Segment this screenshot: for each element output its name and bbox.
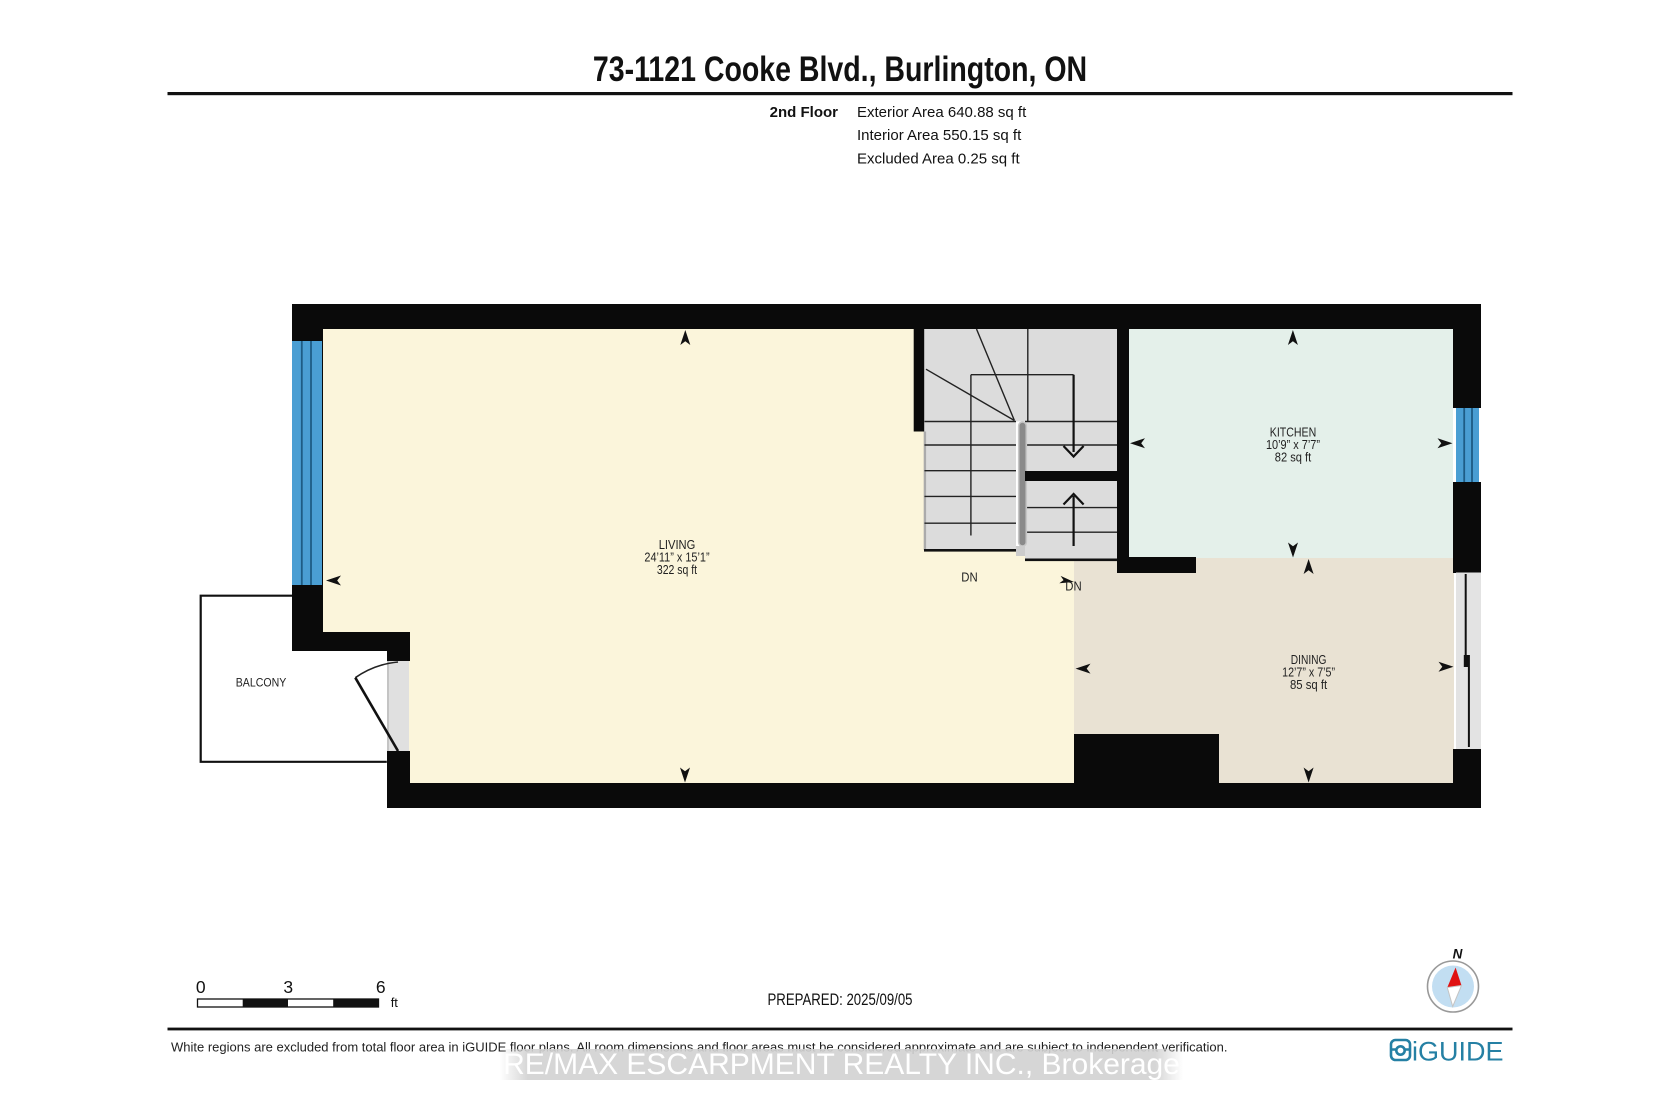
svg-text:ft: ft (391, 995, 399, 1010)
svg-text:3: 3 (283, 977, 293, 997)
svg-text:73-1121 Cooke Blvd., Burlingto: 73-1121 Cooke Blvd., Burlington, ON (593, 49, 1087, 88)
svg-text:0: 0 (196, 977, 206, 997)
svg-text:82 sq ft: 82 sq ft (1275, 450, 1312, 465)
svg-text:PREPARED: 2025/09/05: PREPARED: 2025/09/05 (767, 990, 912, 1009)
svg-text:DN: DN (1065, 578, 1081, 593)
svg-text:6: 6 (376, 977, 386, 997)
svg-text:2nd Floor: 2nd Floor (770, 104, 838, 121)
svg-text:85 sq ft: 85 sq ft (1290, 677, 1328, 692)
svg-text:Interior Area 550.15 sq ft: Interior Area 550.15 sq ft (857, 127, 1022, 144)
svg-text:RE/MAX ESCARPMENT REALTY INC.,: RE/MAX ESCARPMENT REALTY INC., Brokerage (503, 1048, 1180, 1081)
svg-text:iGUIDE: iGUIDE (1412, 1037, 1504, 1067)
svg-text:Excluded Area 0.25 sq ft: Excluded Area 0.25 sq ft (857, 150, 1020, 167)
svg-text:Exterior Area 640.88 sq ft: Exterior Area 640.88 sq ft (857, 104, 1027, 121)
svg-text:N: N (1453, 947, 1463, 962)
svg-text:322 sq ft: 322 sq ft (657, 562, 698, 577)
svg-text:DN: DN (961, 570, 977, 585)
svg-text:BALCONY: BALCONY (236, 676, 287, 690)
